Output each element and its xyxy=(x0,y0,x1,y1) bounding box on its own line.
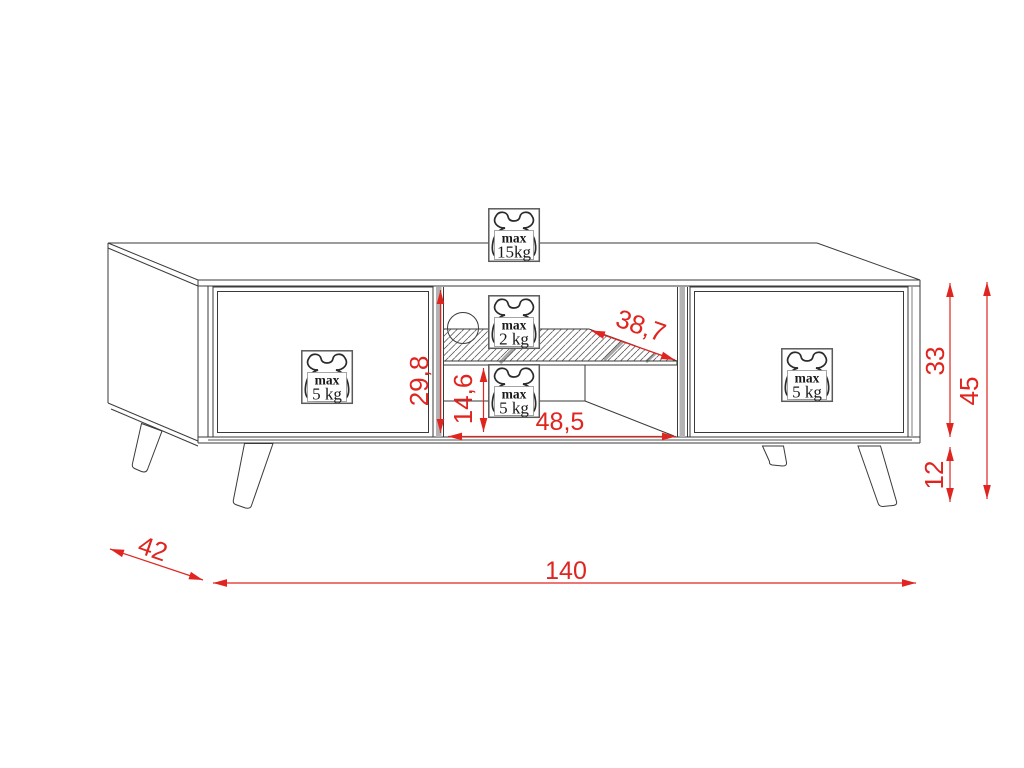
dim-total-height-label: 45 xyxy=(954,377,984,406)
dim-niche-width: 48,5 xyxy=(448,408,676,437)
dim-depth: 42 xyxy=(110,530,203,580)
leg-front-right xyxy=(858,446,897,507)
dim-niche-lower-height: 14,6 xyxy=(448,368,484,432)
dim-body-height: 33 xyxy=(920,283,950,437)
leg-back-right xyxy=(763,446,787,466)
weight-badge-left-door-value: 5 kg xyxy=(312,385,342,404)
dim-niche-width-label: 48,5 xyxy=(536,408,585,436)
weight-badge-shelf-value: 2 kg xyxy=(499,330,529,349)
left-divider xyxy=(436,287,444,437)
dim-leg-height: 12 xyxy=(919,447,950,502)
dim-total-width: 140 xyxy=(213,557,916,585)
left-side-panel xyxy=(108,243,198,446)
dim-niche-lower-height-label: 14,6 xyxy=(448,374,478,425)
dim-niche-height-label: 29,8 xyxy=(404,356,434,407)
weight-badge-top-value: 15kg xyxy=(497,243,532,262)
weight-badge-right-door: max 5 kg xyxy=(782,349,833,402)
dim-depth-label: 42 xyxy=(134,530,171,568)
right-divider xyxy=(678,287,688,437)
weight-badge-right-door-value: 5 kg xyxy=(792,383,822,402)
technical-drawing-canvas: max 15kg max 2 kg max 5 kg max 5 kg max … xyxy=(0,0,1024,768)
dim-body-height-label: 33 xyxy=(920,347,950,376)
tv-stand-drawing: max 15kg max 2 kg max 5 kg max 5 kg max … xyxy=(0,0,1024,768)
dim-leg-height-label: 12 xyxy=(919,461,949,490)
weight-badge-top: max 15kg xyxy=(489,209,540,262)
dim-total-height: 45 xyxy=(954,282,987,499)
dim-total-width-label: 140 xyxy=(545,557,587,585)
weight-badge-left-door: max 5 kg xyxy=(302,351,353,404)
weight-badge-shelf: max 2 kg xyxy=(489,296,540,349)
leg-front-left xyxy=(233,444,273,509)
weight-badge-niche-bottom-value: 5 kg xyxy=(499,399,529,418)
weight-badge-niche-bottom: max 5 kg xyxy=(489,365,540,418)
dim-niche-height: 29,8 xyxy=(404,290,441,433)
leg-back-left xyxy=(132,424,162,472)
